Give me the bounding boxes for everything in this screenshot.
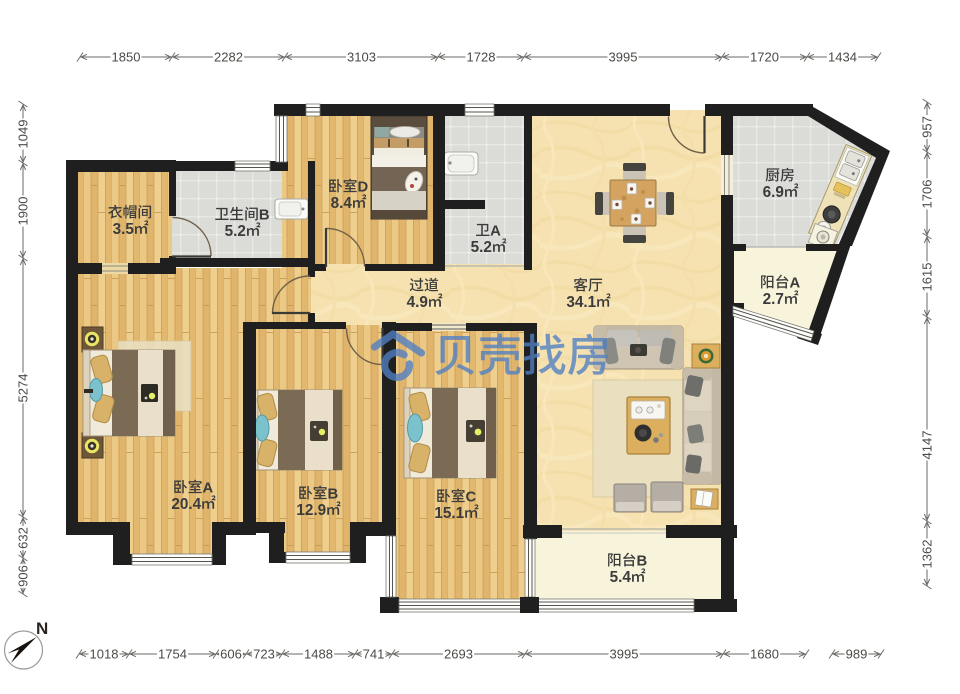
svg-text:5.4: 5.4 [610,569,632,586]
svg-text:12.9: 12.9 [296,502,326,519]
svg-text:8.4: 8.4 [331,195,353,212]
svg-text:1850: 1850 [112,50,141,65]
svg-text:3995: 3995 [610,647,639,662]
svg-text:20.4: 20.4 [171,496,201,513]
svg-text:2.7: 2.7 [763,291,784,308]
svg-text:1362: 1362 [920,540,935,569]
svg-text:D: D [358,179,369,195]
svg-text:3103: 3103 [347,50,376,65]
svg-text:N: N [36,619,48,638]
svg-text:B: B [328,486,339,502]
svg-text:1018: 1018 [90,647,119,662]
svg-text:957: 957 [920,116,935,138]
svg-text:1900: 1900 [16,197,31,226]
svg-text:C: C [466,489,477,505]
svg-text:A: A [790,275,801,291]
svg-text:1434: 1434 [828,50,857,65]
svg-text:2693: 2693 [444,647,473,662]
svg-text:5.2: 5.2 [225,223,246,240]
svg-text:4147: 4147 [920,431,935,460]
svg-text:A: A [203,480,214,496]
svg-text:723: 723 [253,647,275,662]
svg-text:6.9: 6.9 [763,184,784,201]
svg-text:5.2: 5.2 [471,239,492,256]
svg-text:34.1: 34.1 [566,294,596,311]
svg-text:1049: 1049 [16,120,31,149]
svg-text:989: 989 [846,647,868,662]
svg-text:632: 632 [16,527,31,549]
svg-text:A: A [490,223,501,239]
svg-text:741: 741 [363,647,385,662]
svg-text:906: 906 [16,565,31,587]
svg-text:5274: 5274 [16,374,31,403]
svg-text:606: 606 [220,647,242,662]
svg-text:B: B [259,207,270,223]
svg-text:B: B [637,553,648,569]
svg-text:1706: 1706 [920,180,935,209]
svg-text:1754: 1754 [158,647,187,662]
svg-text:4.9: 4.9 [407,294,428,311]
svg-text:1728: 1728 [467,50,496,65]
svg-text:2282: 2282 [214,50,243,65]
svg-text:3995: 3995 [609,50,638,65]
svg-text:1720: 1720 [750,50,779,65]
svg-text:1488: 1488 [304,647,333,662]
svg-text:1680: 1680 [750,647,779,662]
svg-text:3.5: 3.5 [113,221,135,238]
svg-text:15.1: 15.1 [434,505,464,522]
svg-text:1615: 1615 [920,263,935,292]
